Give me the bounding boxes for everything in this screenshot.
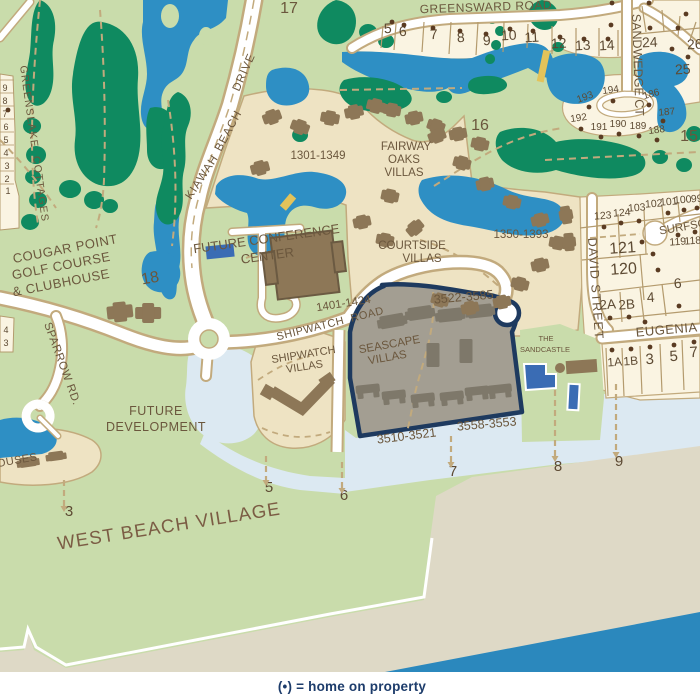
svg-text:6: 6 [3, 122, 8, 132]
svg-text:16: 16 [471, 117, 489, 134]
svg-text:VILLAS: VILLAS [403, 253, 442, 265]
svg-text:2: 2 [4, 174, 9, 184]
svg-text:120: 120 [610, 260, 638, 279]
svg-text:3: 3 [4, 161, 9, 171]
svg-text:5: 5 [3, 135, 8, 145]
svg-text:118: 118 [684, 234, 700, 247]
svg-text:4: 4 [646, 289, 655, 306]
svg-text:3: 3 [3, 338, 8, 348]
svg-text:SANDCASTLE: SANDCASTLE [520, 345, 570, 354]
svg-text:OAKS: OAKS [388, 154, 420, 166]
svg-text:2A: 2A [599, 296, 617, 312]
svg-text:191: 191 [591, 122, 608, 133]
svg-text:121: 121 [609, 239, 637, 258]
svg-text:FUTURE: FUTURE [129, 404, 183, 418]
svg-text:24: 24 [642, 34, 659, 51]
svg-text:THE: THE [539, 334, 554, 343]
svg-text:FAIRWAY: FAIRWAY [381, 141, 432, 153]
svg-text:(•) = home on property: (•) = home on property [278, 679, 427, 694]
svg-text:26: 26 [687, 36, 700, 53]
svg-text:99: 99 [691, 193, 700, 206]
svg-text:189: 189 [630, 121, 647, 132]
svg-text:DEVELOPMENT: DEVELOPMENT [106, 420, 206, 434]
svg-text:1A: 1A [607, 355, 623, 370]
svg-text:7: 7 [689, 344, 699, 362]
svg-text:4: 4 [3, 148, 8, 158]
svg-text:COURTSIDE: COURTSIDE [378, 240, 446, 252]
svg-text:8: 8 [2, 96, 7, 106]
svg-text:VILLAS: VILLAS [385, 167, 424, 179]
svg-text:18: 18 [140, 269, 161, 289]
svg-text:2B: 2B [618, 296, 636, 312]
svg-text:1: 1 [5, 186, 10, 196]
svg-text:25: 25 [675, 61, 692, 78]
svg-text:3: 3 [645, 351, 655, 369]
svg-text:6: 6 [673, 275, 682, 292]
svg-text:3: 3 [65, 503, 73, 520]
svg-text:1350-1393: 1350-1393 [494, 229, 549, 241]
svg-text:15: 15 [680, 128, 698, 145]
svg-text:1301-1349: 1301-1349 [291, 150, 346, 162]
svg-text:103: 103 [628, 201, 646, 214]
svg-text:100: 100 [674, 193, 692, 206]
svg-text:1B: 1B [623, 354, 639, 369]
svg-text:9: 9 [2, 83, 7, 93]
svg-text:5: 5 [669, 348, 679, 366]
svg-text:4: 4 [3, 325, 8, 335]
svg-text:190: 190 [610, 119, 627, 130]
svg-text:123: 123 [594, 209, 612, 222]
svg-text:187: 187 [658, 106, 676, 118]
svg-text:17: 17 [280, 0, 298, 17]
